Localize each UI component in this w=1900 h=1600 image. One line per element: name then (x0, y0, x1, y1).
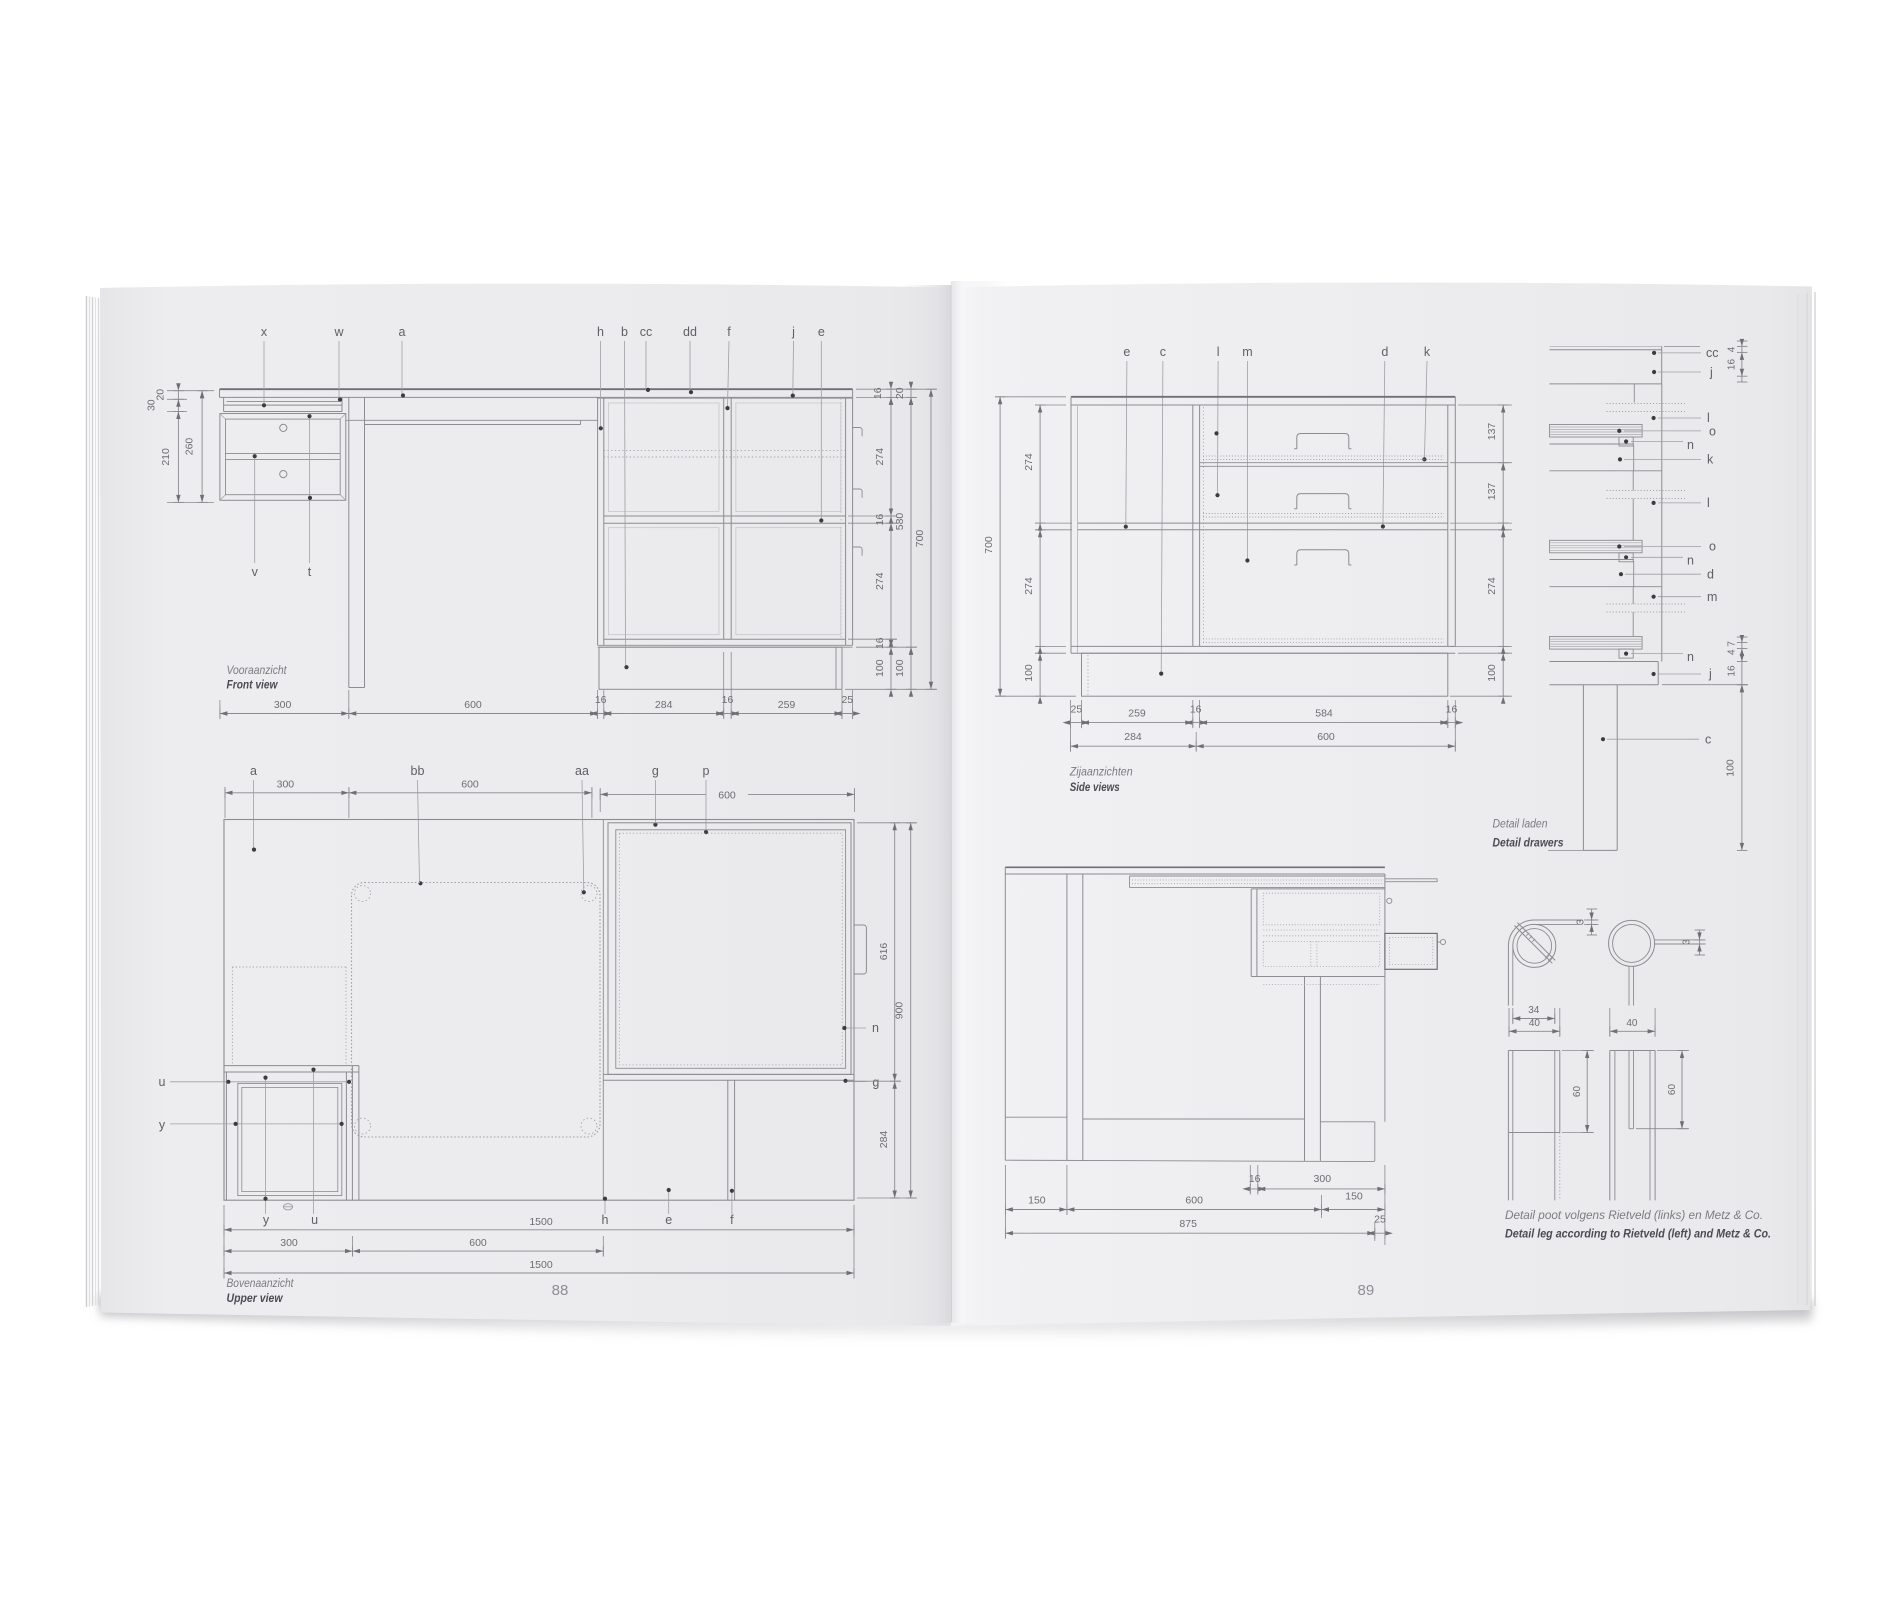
svg-text:16: 16 (1249, 1173, 1261, 1185)
svg-text:100: 100 (874, 659, 886, 677)
svg-text:j: j (1708, 667, 1712, 681)
svg-text:p: p (703, 764, 710, 778)
svg-text:Detail leg according to Rietve: Detail leg according to Rietveld (left) … (1505, 1229, 1771, 1241)
svg-text:n: n (872, 1021, 879, 1035)
svg-text:137: 137 (1486, 483, 1498, 501)
svg-text:Detail laden: Detail laden (1493, 817, 1548, 831)
svg-text:u: u (159, 1075, 166, 1089)
svg-text:616: 616 (878, 943, 890, 961)
svg-text:25: 25 (841, 694, 853, 706)
svg-text:260: 260 (184, 438, 196, 456)
svg-text:b: b (621, 325, 628, 339)
svg-text:m: m (1242, 345, 1252, 359)
svg-text:3: 3 (1682, 939, 1693, 945)
svg-text:a: a (250, 764, 257, 778)
svg-text:584: 584 (1315, 708, 1333, 720)
svg-text:600: 600 (718, 789, 736, 801)
svg-text:e: e (1123, 345, 1130, 359)
svg-text:150: 150 (1028, 1195, 1046, 1207)
svg-text:25: 25 (1071, 704, 1083, 716)
svg-text:k: k (1424, 345, 1431, 359)
svg-text:4: 4 (1727, 346, 1738, 352)
svg-text:60: 60 (1667, 1084, 1678, 1096)
svg-text:Side views: Side views (1070, 780, 1120, 794)
svg-text:284: 284 (878, 1131, 890, 1149)
svg-text:16: 16 (1446, 704, 1458, 716)
svg-text:60: 60 (1572, 1086, 1583, 1098)
svg-text:f: f (730, 1213, 734, 1227)
svg-text:t: t (308, 565, 312, 579)
svg-text:Detail poot volgens Rietveld (: Detail poot volgens Rietveld (links) en … (1505, 1210, 1763, 1222)
svg-text:n: n (1687, 438, 1694, 452)
svg-text:x: x (261, 325, 268, 339)
svg-text:aa: aa (575, 764, 589, 778)
svg-text:y: y (159, 1118, 166, 1132)
svg-text:600: 600 (469, 1237, 487, 1249)
svg-text:300: 300 (1314, 1173, 1332, 1185)
svg-text:cc: cc (640, 325, 653, 339)
svg-text:y: y (263, 1213, 270, 1227)
svg-text:Detail drawers: Detail drawers (1493, 836, 1564, 850)
svg-text:34: 34 (1528, 1005, 1540, 1016)
svg-text:bb: bb (411, 764, 425, 778)
svg-text:30: 30 (146, 399, 158, 411)
svg-text:16: 16 (1727, 359, 1738, 371)
svg-text:100: 100 (1725, 759, 1737, 777)
svg-text:600: 600 (464, 699, 482, 711)
svg-text:k: k (1707, 453, 1714, 467)
svg-text:875: 875 (1179, 1218, 1197, 1230)
svg-text:4 7: 4 7 (1727, 641, 1738, 655)
svg-text:e: e (818, 325, 825, 339)
svg-text:cc: cc (1706, 346, 1719, 360)
svg-text:3: 3 (1576, 919, 1587, 925)
svg-text:259: 259 (1128, 708, 1146, 720)
svg-text:20: 20 (155, 389, 167, 401)
svg-text:210: 210 (160, 448, 172, 466)
svg-text:274: 274 (874, 448, 886, 466)
svg-text:16: 16 (1727, 665, 1738, 677)
svg-text:h: h (602, 1213, 609, 1227)
svg-text:700: 700 (983, 536, 995, 554)
svg-text:16: 16 (722, 694, 734, 706)
svg-text:16: 16 (595, 694, 607, 706)
svg-text:j: j (1709, 366, 1713, 380)
svg-text:d: d (1381, 345, 1388, 359)
svg-text:274: 274 (1486, 577, 1498, 595)
svg-text:16: 16 (872, 387, 884, 399)
svg-text:300: 300 (277, 778, 295, 790)
svg-text:16: 16 (874, 514, 886, 526)
svg-text:580: 580 (894, 513, 906, 531)
svg-text:g: g (652, 764, 659, 778)
svg-text:l: l (1707, 411, 1710, 425)
svg-text:100: 100 (1023, 664, 1035, 682)
svg-text:g: g (872, 1076, 879, 1090)
svg-text:n: n (1687, 554, 1694, 568)
svg-text:284: 284 (655, 699, 673, 711)
svg-text:274: 274 (1023, 453, 1035, 471)
svg-text:n: n (1687, 650, 1694, 664)
svg-text:h: h (597, 325, 604, 339)
svg-text:Vooraanzicht: Vooraanzicht (227, 663, 288, 677)
svg-text:274: 274 (1023, 577, 1035, 595)
svg-text:137: 137 (1486, 423, 1498, 441)
svg-text:25: 25 (1374, 1214, 1386, 1226)
svg-text:16: 16 (874, 637, 886, 649)
svg-text:e: e (665, 1213, 672, 1227)
svg-text:c: c (1705, 732, 1711, 746)
svg-text:l: l (1217, 345, 1220, 359)
svg-text:40: 40 (1626, 1018, 1638, 1029)
svg-text:j: j (791, 325, 795, 339)
svg-text:700: 700 (914, 530, 926, 548)
svg-text:c: c (1160, 345, 1166, 359)
svg-text:f: f (727, 325, 731, 339)
svg-text:1500: 1500 (529, 1259, 553, 1271)
svg-text:274: 274 (874, 572, 886, 590)
svg-text:d: d (1707, 567, 1714, 581)
svg-text:u: u (311, 1213, 318, 1227)
svg-text:16: 16 (1190, 704, 1202, 716)
svg-text:40: 40 (1529, 1018, 1541, 1029)
svg-text:900: 900 (894, 1002, 906, 1020)
svg-text:300: 300 (280, 1237, 298, 1249)
svg-text:Zijaanzichten: Zijaanzichten (1069, 765, 1133, 779)
svg-text:Front view: Front view (227, 678, 279, 692)
svg-text:100: 100 (894, 659, 906, 677)
svg-text:dd: dd (683, 325, 697, 339)
svg-text:89: 89 (1358, 1282, 1375, 1299)
svg-text:150: 150 (1345, 1191, 1363, 1203)
svg-text:o: o (1709, 424, 1716, 438)
svg-text:300: 300 (274, 699, 292, 711)
svg-text:88: 88 (552, 1282, 569, 1299)
svg-text:20: 20 (894, 387, 906, 399)
svg-text:600: 600 (461, 778, 479, 790)
svg-text:600: 600 (1317, 731, 1335, 743)
svg-text:284: 284 (1124, 731, 1142, 743)
svg-text:600: 600 (1185, 1195, 1203, 1207)
svg-text:m: m (1707, 590, 1717, 604)
svg-text:a: a (399, 325, 406, 339)
svg-text:Upper view: Upper view (227, 1291, 284, 1305)
svg-text:Bovenaanzicht: Bovenaanzicht (227, 1276, 295, 1290)
svg-text:v: v (252, 565, 259, 579)
svg-text:o: o (1709, 539, 1716, 553)
svg-text:100: 100 (1486, 664, 1498, 682)
svg-text:l: l (1707, 496, 1710, 510)
svg-text:259: 259 (778, 699, 796, 711)
svg-text:1500: 1500 (529, 1216, 553, 1228)
svg-text:w: w (333, 325, 344, 339)
